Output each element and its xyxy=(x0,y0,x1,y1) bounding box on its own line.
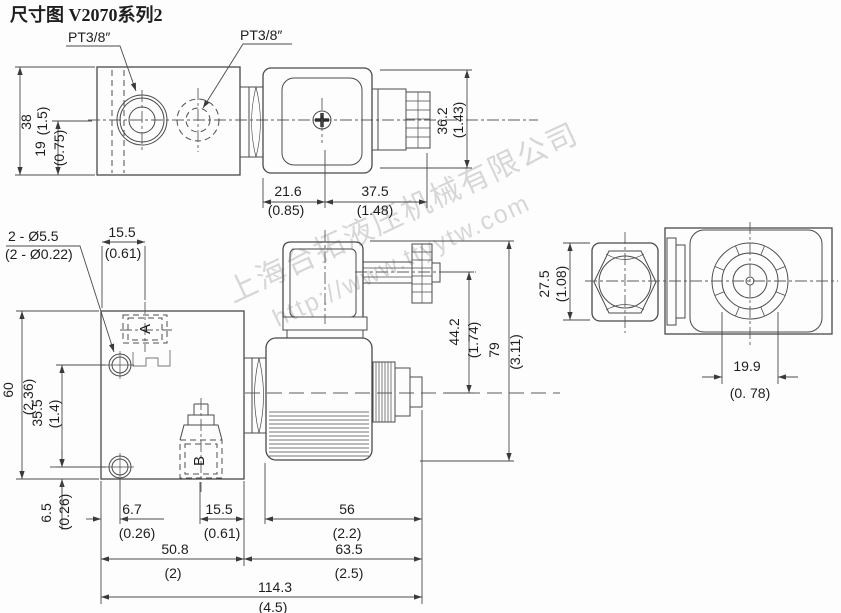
dim-6-5: 6.5 (0.26) xyxy=(38,450,72,530)
dim-38-mm: 38 xyxy=(18,114,34,130)
dim-114-3-in: (4.5) xyxy=(259,599,288,613)
dim-6-7: 6.7 (0.26) xyxy=(86,501,164,541)
plate-edge xyxy=(676,245,685,318)
port-b: B xyxy=(180,398,222,492)
dim-bottom-15-5: 15.5 (0.61) xyxy=(200,501,244,541)
dim-35-5: 35.5 (1.4) xyxy=(29,365,106,467)
valve-body-side xyxy=(101,311,244,479)
dim-60: 60 (2.36) xyxy=(0,311,99,479)
connector-base-plate2 xyxy=(287,330,363,338)
symbol-mark xyxy=(133,350,170,366)
coil-winding-hatch xyxy=(269,412,369,456)
dim-19-in: (0.75) xyxy=(51,130,67,167)
hex-nut-side xyxy=(244,358,266,433)
dim-63-5: 63.5 (2.5) xyxy=(244,541,422,581)
port2-label: PT3/8″ xyxy=(240,27,282,43)
dim-6-7-mm: 6.7 xyxy=(122,501,142,517)
dim-bottom-15-5-in: (0.61) xyxy=(204,525,241,541)
dim-63-5-in: (2.5) xyxy=(335,565,364,581)
dim-19-9: 19.9 (0. 78) xyxy=(702,312,798,401)
dim-56: 56 (2.2) xyxy=(265,501,422,541)
hex-nut-end xyxy=(592,232,658,333)
port1-callout: PT3/8″ xyxy=(66,29,136,91)
adjuster-knob-face xyxy=(712,222,788,345)
dim-bottom-15-5-mm: 15.5 xyxy=(205,501,232,517)
port-a: A xyxy=(120,302,172,352)
mounting-hole-top xyxy=(106,351,134,379)
holes-label-mm: 2 - Ø5.5 xyxy=(8,228,59,244)
dim-35-5-mm: 35.5 xyxy=(29,399,45,426)
dim-19-9-mm: 19.9 xyxy=(733,358,760,374)
page-title: 尺寸图 V2070系列2 xyxy=(10,4,163,25)
dim-top-15-5-mm: 15.5 xyxy=(108,224,135,240)
gland-ring-edge xyxy=(667,238,676,325)
drawing-canvas: 上海台拓液压机械有限公司 http://www.ttyytw.com 尺寸图 V… xyxy=(0,0,841,613)
dim-21-6-mm: 21.6 xyxy=(274,183,301,199)
dim-63-5-mm: 63.5 xyxy=(335,541,362,557)
dim-top-15-5: 15.5 (0.61) xyxy=(102,224,145,308)
dim-35-5-in: (1.4) xyxy=(46,400,62,429)
dim-6-5-in: (0.26) xyxy=(56,494,72,531)
dim-50-8-in: (2) xyxy=(164,565,181,581)
end-view: 27.5 (1.08) 19.9 (0. 78) xyxy=(536,222,838,401)
mounting-hole-bottom xyxy=(106,453,134,481)
dim-56-mm: 56 xyxy=(339,501,355,517)
port-a-label: A xyxy=(137,324,154,334)
dim-27-5-mm: 27.5 xyxy=(536,270,552,297)
cable-gland-top xyxy=(372,89,430,150)
dim-27-5: 27.5 (1.08) xyxy=(536,243,590,320)
dim-38-in: (1.5) xyxy=(34,107,50,136)
dim-79-in: (3.11) xyxy=(507,334,523,370)
dim-37-5-in: (1.48) xyxy=(357,202,394,218)
dim-44-2-in: (1.74) xyxy=(465,322,481,359)
dim-44-2: 44.2 (1.74) xyxy=(440,272,481,393)
dim-44-2-mm: 44.2 xyxy=(446,318,462,345)
dim-50-8: 50.8 (2) xyxy=(101,541,244,581)
adjuster-knob-side xyxy=(373,362,422,422)
dim-79-mm: 79 xyxy=(486,342,502,358)
dim-60-mm: 60 xyxy=(0,382,16,398)
dim-36-2-mm: 36.2 xyxy=(434,107,450,134)
port1-label: PT3/8″ xyxy=(68,29,110,45)
dim-36-2-in: (1.43) xyxy=(450,102,466,139)
dim-114-3-mm: 114.3 xyxy=(258,579,292,595)
dim-6-7-in: (0.26) xyxy=(119,525,156,541)
dim-21-6-in: (0.85) xyxy=(268,202,305,218)
dimension-drawing-page: 上海台拓液压机械有限公司 http://www.ttyytw.com 尺寸图 V… xyxy=(0,0,841,613)
dim-top-15-5-in: (0.61) xyxy=(105,245,142,261)
dim-37-5-mm: 37.5 xyxy=(361,183,388,199)
port-b-label: B xyxy=(191,456,208,466)
dim-56-in: (2.2) xyxy=(333,525,362,541)
dim-6-5-mm: 6.5 xyxy=(38,503,54,523)
dim-19-mm: 19 xyxy=(32,141,48,157)
dim-114-3: 114.3 (4.5) xyxy=(101,579,422,613)
dim-27-5-in: (1.08) xyxy=(553,266,569,303)
dim-19-9-in: (0. 78) xyxy=(730,385,770,401)
din-connector-top xyxy=(263,68,372,173)
holes-callout: 2 - Ø5.5 (2 - Ø0.22) xyxy=(5,228,114,352)
dim-50-8-mm: 50.8 xyxy=(161,541,188,557)
holes-label-in: (2 - Ø0.22) xyxy=(5,246,73,262)
hex-nut-top xyxy=(240,87,263,157)
